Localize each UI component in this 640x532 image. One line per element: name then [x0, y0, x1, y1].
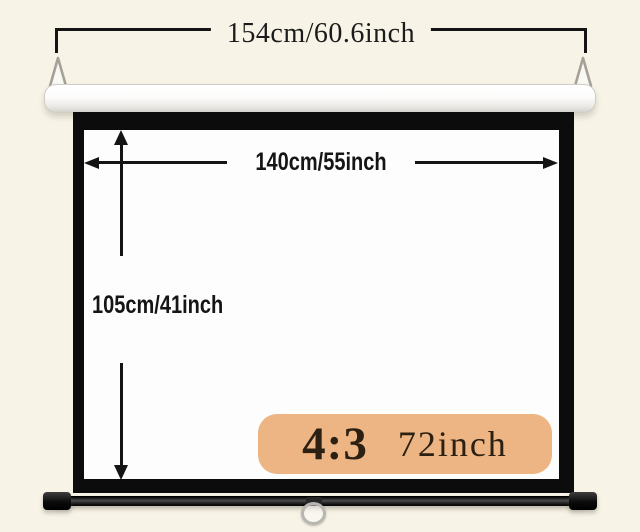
product-diagram: 154cm/60.6inch 140cm/55inch 105cm/41inch…	[0, 0, 640, 532]
width-arrow-line-right	[415, 161, 543, 164]
height-arrow-line-bottom	[120, 363, 123, 467]
roller-casing	[44, 84, 596, 113]
viewable-width-label: 140cm/55inch	[246, 148, 396, 177]
arrowhead-right-icon	[543, 157, 558, 169]
bar-left-end-cap	[43, 492, 71, 510]
pull-ring	[301, 502, 326, 525]
width-arrow-line-left	[99, 161, 227, 164]
screen-size-label: 72inch	[398, 426, 508, 462]
arrowhead-down-icon	[114, 465, 128, 480]
aspect-ratio-label: 4:3	[302, 421, 368, 468]
right-hook-icon	[570, 55, 596, 87]
bar-right-end-cap	[569, 492, 597, 510]
left-hook-icon	[45, 55, 71, 87]
arrowhead-left-icon	[84, 157, 99, 169]
height-arrow-line-top	[120, 143, 123, 256]
width-arrow: 140cm/55inch	[84, 149, 558, 176]
total-width-dimension-bracket: 154cm/60.6inch	[55, 28, 587, 53]
ratio-size-badge: 4:3 72inch	[258, 414, 552, 474]
viewable-height-label: 105cm/41inch	[92, 291, 223, 320]
total-width-label: 154cm/60.6inch	[211, 17, 431, 51]
